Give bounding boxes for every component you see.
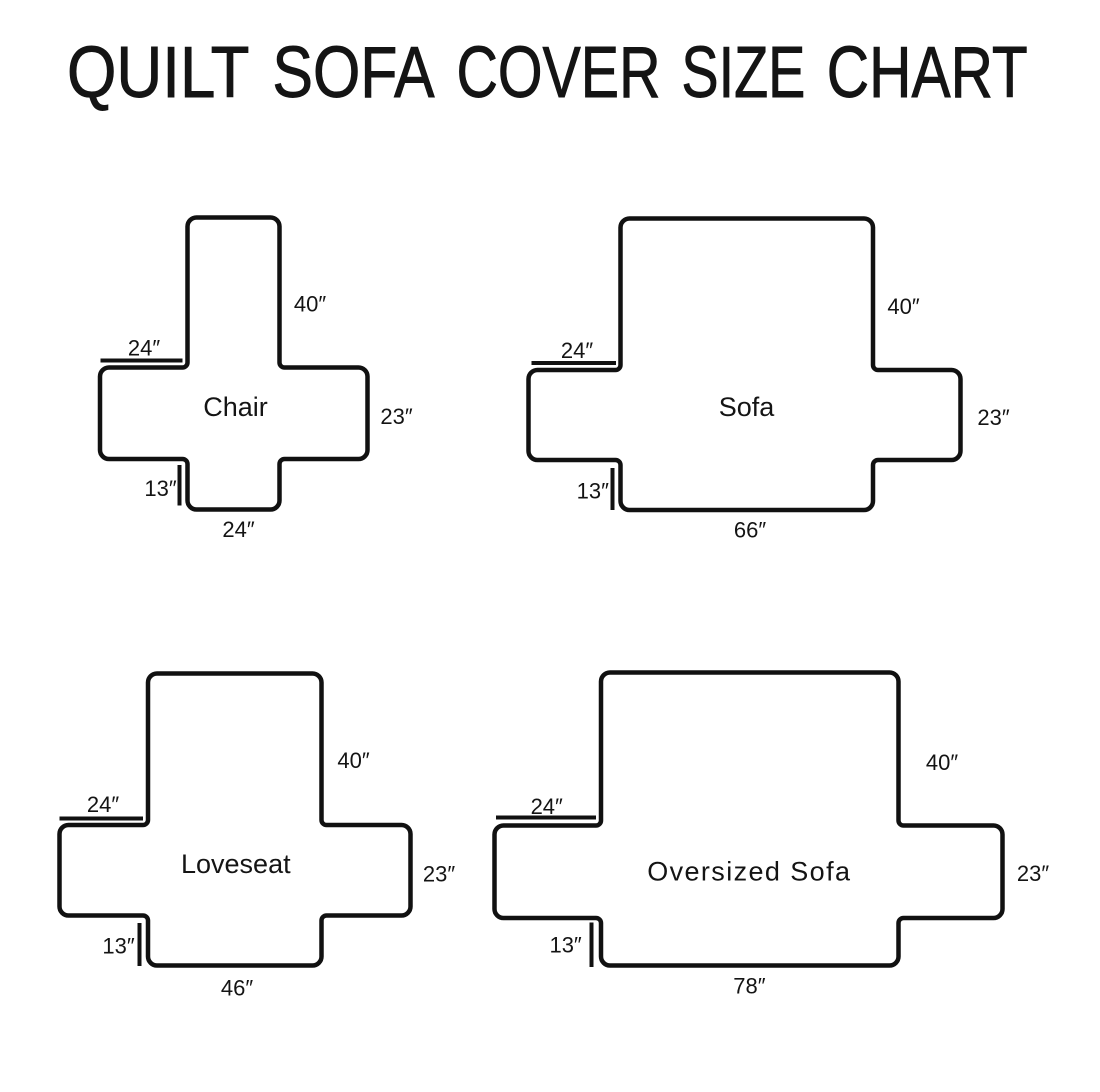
svg-text:SIZE: SIZE xyxy=(681,33,805,113)
svg-text:24″: 24″ xyxy=(128,336,160,361)
svg-text:40″: 40″ xyxy=(887,294,919,319)
svg-text:Sofa: Sofa xyxy=(719,392,776,422)
svg-text:40″: 40″ xyxy=(926,750,958,775)
svg-text:13″: 13″ xyxy=(102,934,134,959)
svg-text:66″: 66″ xyxy=(734,518,766,543)
svg-text:13″: 13″ xyxy=(549,933,581,958)
svg-text:13″: 13″ xyxy=(144,476,176,501)
svg-text:24″: 24″ xyxy=(87,792,119,817)
svg-text:24″: 24″ xyxy=(561,338,593,363)
svg-text:23″: 23″ xyxy=(977,405,1009,430)
svg-text:Chair: Chair xyxy=(203,392,268,422)
svg-text:CHART: CHART xyxy=(827,33,1028,113)
svg-text:40″: 40″ xyxy=(337,748,369,773)
svg-text:40″: 40″ xyxy=(294,292,326,317)
svg-text:SOFA: SOFA xyxy=(272,33,434,113)
svg-text:COVER: COVER xyxy=(457,33,661,113)
svg-text:46″: 46″ xyxy=(221,976,253,1001)
svg-text:QUILT: QUILT xyxy=(67,33,249,113)
svg-text:23″: 23″ xyxy=(380,404,412,429)
svg-text:24″: 24″ xyxy=(531,794,563,819)
svg-text:23″: 23″ xyxy=(423,862,455,887)
svg-text:Oversized Sofa: Oversized Sofa xyxy=(647,857,851,887)
svg-text:23″: 23″ xyxy=(1017,861,1049,886)
svg-text:24″: 24″ xyxy=(222,517,254,542)
svg-text:13″: 13″ xyxy=(577,479,609,504)
svg-text:78″: 78″ xyxy=(733,974,765,999)
svg-text:Loveseat: Loveseat xyxy=(181,849,291,879)
